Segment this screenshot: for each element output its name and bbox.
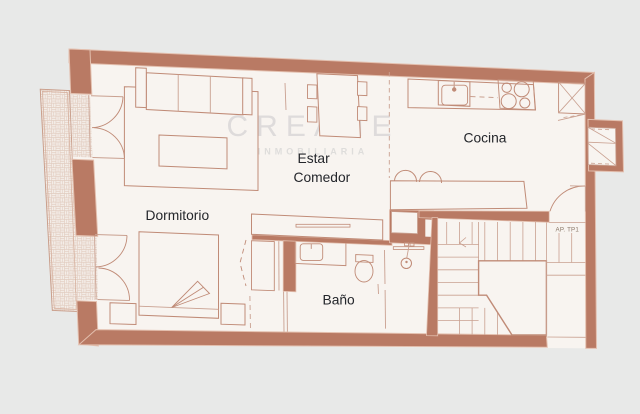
svg-text:Comedor: Comedor bbox=[294, 170, 351, 185]
svg-text:Baño: Baño bbox=[323, 292, 356, 307]
svg-text:AP. TP1: AP. TP1 bbox=[556, 226, 580, 233]
svg-text:Cocina: Cocina bbox=[464, 131, 507, 146]
svg-text:Dormitorio: Dormitorio bbox=[146, 208, 210, 223]
svg-text:Estar: Estar bbox=[298, 151, 331, 166]
